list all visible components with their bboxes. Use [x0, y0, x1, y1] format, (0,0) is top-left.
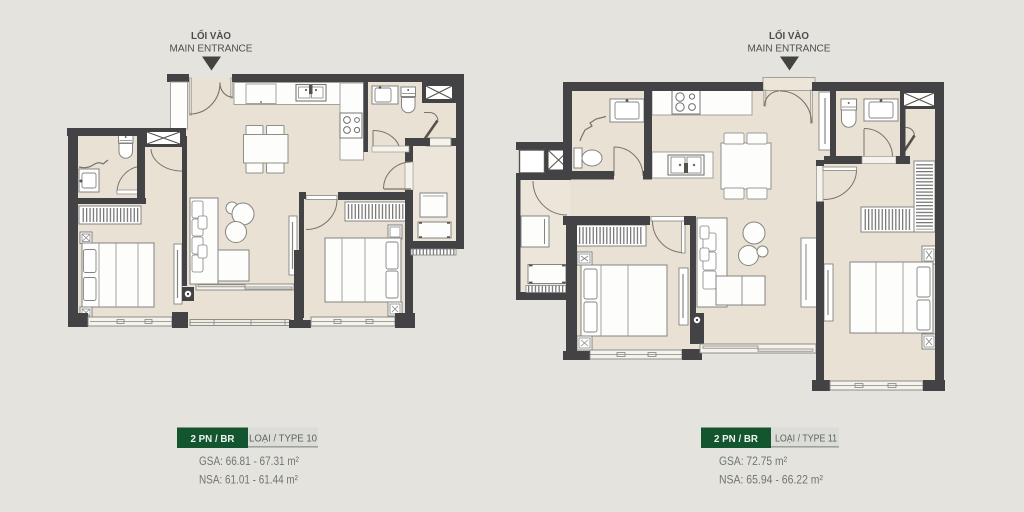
svg-text:GSA: 66.81 - 67.31 m²: GSA: 66.81 - 67.31 m²	[199, 454, 299, 468]
svg-text:LOẠI / TYPE 10: LOẠI / TYPE 10	[249, 433, 317, 445]
svg-text:NSA: 65.94 - 66.22 m²: NSA: 65.94 - 66.22 m²	[719, 473, 823, 487]
svg-text:2 PN / BR: 2 PN / BR	[714, 433, 758, 445]
svg-text:2 PN / BR: 2 PN / BR	[191, 433, 235, 445]
svg-text:LOẠI / TYPE 11: LOẠI / TYPE 11	[775, 433, 837, 445]
svg-text:LỐI VÀO: LỐI VÀO	[769, 28, 809, 42]
svg-text:MAIN ENTRANCE: MAIN ENTRANCE	[748, 44, 831, 55]
svg-text:MAIN ENTRANCE: MAIN ENTRANCE	[170, 44, 253, 55]
svg-text:LỐI VÀO: LỐI VÀO	[191, 28, 231, 42]
svg-text:NSA: 61.01 - 61.44 m²: NSA: 61.01 - 61.44 m²	[199, 473, 298, 487]
svg-text:GSA: 72.75 m²: GSA: 72.75 m²	[719, 454, 787, 468]
